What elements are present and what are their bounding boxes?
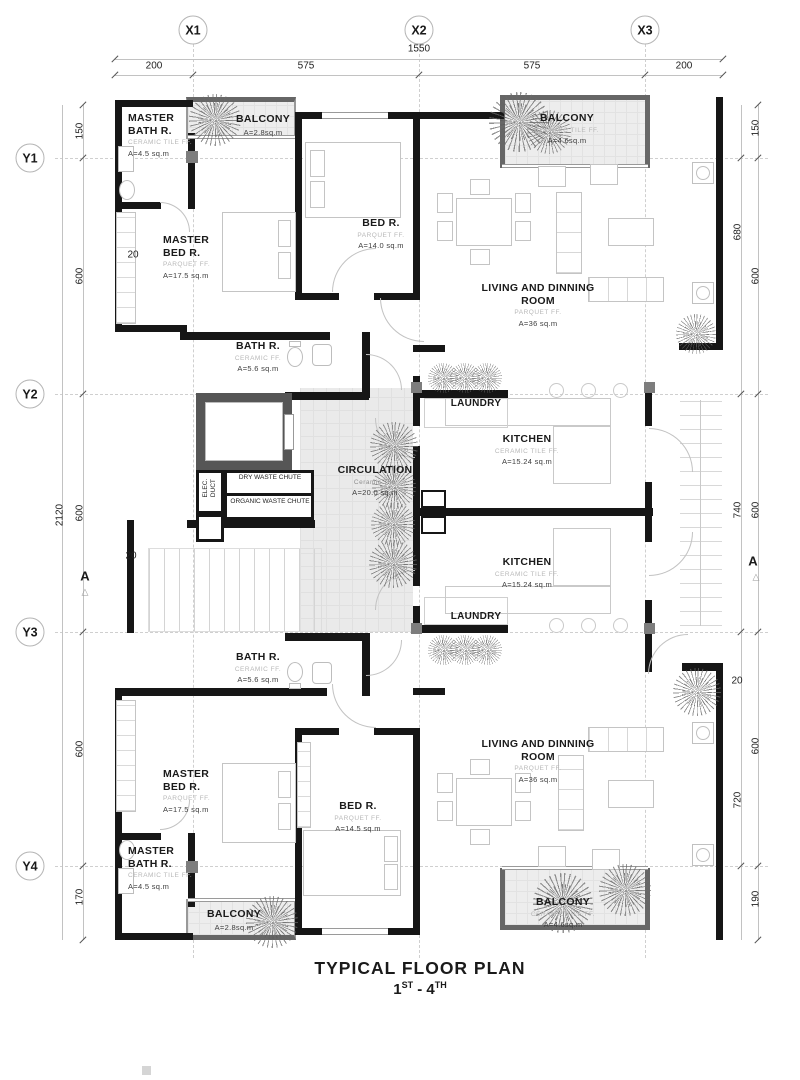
wall xyxy=(224,493,314,496)
drawing-subtitle: 1ST - 4TH xyxy=(393,980,447,998)
room-finish: PARQUET FF. xyxy=(473,765,603,773)
room-area: A=15.24 sq.m xyxy=(495,457,559,466)
dim-right-inner-1: 680 xyxy=(733,224,744,241)
column xyxy=(411,382,422,393)
room-name: LAUNDRY xyxy=(451,398,502,410)
room-label-bath-lower: BATH R. CERAMIC FF. A=5.6 sq.m xyxy=(235,651,281,684)
wall xyxy=(115,688,327,696)
wall-mark-20-b: 20 xyxy=(125,551,136,562)
organic-waste-chute-label: ORGANIC WASTE CHUTE xyxy=(230,498,310,506)
dim-tick xyxy=(754,936,761,943)
dim-top-seg-4: 200 xyxy=(676,61,693,72)
chair xyxy=(470,179,490,195)
room-finish: PARQUET FF. xyxy=(357,232,404,240)
wall xyxy=(180,332,330,340)
dim-right-outer-3: 600 xyxy=(751,502,762,519)
toilet-tank xyxy=(289,341,301,347)
axis-label-x2: X2 xyxy=(411,23,426,37)
room-name: LIVING AND DINNING ROOM xyxy=(473,282,603,307)
wall xyxy=(413,112,420,300)
room-area: A=2.8sq.m xyxy=(207,923,261,932)
room-name: BALCONY xyxy=(531,896,595,909)
room-finish: PARQUET FF. xyxy=(334,815,381,823)
wall xyxy=(115,202,161,209)
axis-bubble-y4: Y4 xyxy=(16,852,45,881)
room-label-living-upper: LIVING AND DINNING ROOM PARQUET FF. A=36… xyxy=(473,282,603,328)
dim-top-seg-2: 575 xyxy=(298,61,315,72)
axis-label-y2: Y2 xyxy=(22,387,37,401)
room-finish: PARQUET FF. xyxy=(473,309,603,317)
room-label-master-bath-upper: MASTER BATH R. CERAMIC TILE FF. A=4.5 sq… xyxy=(128,112,204,158)
stairs-right-centerline xyxy=(700,400,701,626)
wall xyxy=(413,345,445,352)
dry-waste-chute-label: DRY WASTE CHUTE xyxy=(230,474,310,482)
room-area: A=2.8sq.m xyxy=(236,128,290,137)
stairs-right xyxy=(680,400,722,626)
plant-icon xyxy=(676,314,716,354)
room-label-laundry-lower: LAUNDRY xyxy=(451,611,502,623)
dim-left-seg-3: 600 xyxy=(75,505,86,522)
dim-right-outer-4: 600 xyxy=(751,738,762,755)
room-label-master-bed-upper: MASTER BED R. PARQUET FF. A=17.5 sq.m xyxy=(163,234,233,280)
room-label-circulation: CIRCULATION Ceramic Tile A=20.0 sq.m xyxy=(338,464,413,497)
floor-dash: - xyxy=(413,981,426,998)
section-marker-a-left: A xyxy=(80,569,89,584)
floor-plan-drawing: X1 X2 X3 Y1 Y2 Y3 Y4 1550 200 575 575 20… xyxy=(0,0,800,1080)
room-area: A=15.24 sq.m xyxy=(495,580,559,589)
room-label-balcony-bottom-left: BALCONY A=2.8sq.m xyxy=(207,908,261,932)
chair xyxy=(437,773,453,793)
room-area: A=36 sq.m xyxy=(473,319,603,328)
shaft-box xyxy=(421,490,446,508)
toilet xyxy=(287,662,303,682)
room-name: LAUNDRY xyxy=(451,611,502,623)
section-triangle-right: △ xyxy=(753,572,760,583)
axis-label-y4: Y4 xyxy=(22,859,37,873)
axis-label-y3: Y3 xyxy=(22,625,37,639)
wall xyxy=(295,293,339,300)
sofa xyxy=(556,192,582,274)
room-label-balcony-bottom-right: BALCONY CERAMIC TILE FF. A=4.6sq.m xyxy=(531,896,595,929)
room-area: A=17.5 sq.m xyxy=(163,805,233,814)
axis-bubble-x3: X3 xyxy=(631,16,660,45)
plant-icon xyxy=(472,635,502,665)
room-area: A=4.6sq.m xyxy=(535,136,599,145)
sink-circle xyxy=(549,383,564,398)
room-name: MASTER BED R. xyxy=(163,768,233,793)
chair xyxy=(470,249,490,265)
wall xyxy=(295,928,323,935)
dim-right-outer-2: 600 xyxy=(751,268,762,285)
coffee-table xyxy=(608,218,654,246)
room-name: BATH R. xyxy=(235,340,281,353)
room-finish: CERAMIC TILE FF. xyxy=(128,872,204,880)
elevator-door xyxy=(284,414,294,450)
room-label-master-bed-lower: MASTER BED R. PARQUET FF. A=17.5 sq.m xyxy=(163,768,233,814)
axis-label-x1: X1 xyxy=(185,23,200,37)
chair xyxy=(470,829,490,845)
chair xyxy=(437,221,453,241)
room-area: A=4.5 sq.m xyxy=(128,882,204,891)
toilet xyxy=(119,180,135,200)
wall xyxy=(420,508,653,516)
dim-top-seg-1: 200 xyxy=(146,61,163,72)
room-area: A=20.0 sq.m xyxy=(338,488,413,497)
chair xyxy=(515,193,531,213)
wall xyxy=(115,325,187,332)
pillow xyxy=(310,181,325,208)
room-name: BATH R. xyxy=(235,651,281,664)
dim-left-seg-2: 600 xyxy=(75,268,86,285)
wall xyxy=(115,100,193,107)
wall xyxy=(420,625,508,633)
room-finish: CERAMIC TILE FF. xyxy=(495,571,559,579)
dim-left-seg-4: 600 xyxy=(75,741,86,758)
room-name: BALCONY xyxy=(207,908,261,921)
door-arc xyxy=(332,248,376,292)
dim-right-outer-5: 190 xyxy=(751,891,762,908)
chair xyxy=(515,221,531,241)
wall xyxy=(295,112,302,300)
pillow xyxy=(384,864,398,890)
armchair xyxy=(538,166,566,187)
coffee-table xyxy=(608,780,654,808)
section-marker-a-right: A xyxy=(748,554,757,569)
room-label-laundry-upper: LAUNDRY xyxy=(451,398,502,410)
dim-right-outer-1: 150 xyxy=(751,120,762,137)
room-area: A=14.0 sq.m xyxy=(357,241,404,250)
chair xyxy=(515,801,531,821)
kitchen-counter xyxy=(445,586,611,614)
wall xyxy=(127,520,134,633)
dining-table xyxy=(456,198,512,246)
pillow xyxy=(278,252,291,279)
room-label-bed-upper: BED R. PARQUET FF. A=14.0 sq.m xyxy=(357,217,404,250)
room-finish: CERAMIC TILE FF. xyxy=(495,448,559,456)
door-arc xyxy=(366,640,402,676)
room-name: MASTER BATH R. xyxy=(128,112,204,137)
wall xyxy=(374,728,420,735)
water-heater xyxy=(692,162,714,184)
room-label-kitchen-upper: KITCHEN CERAMIC TILE FF. A=15.24 sq.m xyxy=(495,433,559,466)
chair xyxy=(437,193,453,213)
wall xyxy=(115,833,161,840)
wall xyxy=(285,633,369,641)
axis-bubble-y2: Y2 xyxy=(16,380,45,409)
shaft-box xyxy=(421,516,446,534)
pillow xyxy=(310,150,325,177)
pillow xyxy=(384,836,398,862)
room-finish: CERAMIC TILE FF. xyxy=(128,139,204,147)
dim-line-left-segments xyxy=(83,105,84,940)
dim-tick xyxy=(719,55,726,62)
axis-label-x3: X3 xyxy=(637,23,652,37)
chair xyxy=(437,801,453,821)
room-label-bed-lower: BED R. PARQUET FF. A=14.5 sq.m xyxy=(334,800,381,833)
armchair xyxy=(538,846,566,867)
room-name: MASTER BED R. xyxy=(163,234,233,259)
room-finish: CERAMIC FF. xyxy=(235,666,281,674)
room-area: A=36 sq.m xyxy=(473,775,603,784)
pillow xyxy=(278,220,291,247)
water-heater xyxy=(692,722,714,744)
room-area: A=17.5 sq.m xyxy=(163,271,233,280)
axis-bubble-x2: X2 xyxy=(405,16,434,45)
dim-line-right-outer xyxy=(758,105,759,940)
sink-circle xyxy=(613,618,628,633)
wall xyxy=(295,728,339,735)
wall xyxy=(115,933,193,940)
column xyxy=(411,623,422,634)
dim-top-seg-3: 575 xyxy=(524,61,541,72)
room-finish: PARQUET FF. xyxy=(163,795,233,803)
grid-line-y1 xyxy=(55,158,768,159)
dim-left-seg-5: 170 xyxy=(75,889,86,906)
sink-circle xyxy=(581,383,596,398)
wall xyxy=(645,390,652,426)
room-label-kitchen-lower: KITCHEN CERAMIC TILE FF. A=15.24 sq.m xyxy=(495,556,559,589)
wall xyxy=(413,688,445,695)
stairs-left xyxy=(148,548,322,632)
room-name: BED R. xyxy=(357,217,404,230)
plant-icon xyxy=(369,540,417,588)
wall xyxy=(413,728,420,935)
room-name: KITCHEN xyxy=(495,433,559,446)
room-area: A=4.5 sq.m xyxy=(128,149,204,158)
door-arc xyxy=(648,634,688,674)
closet xyxy=(116,700,136,812)
kitchen-counter xyxy=(553,528,611,586)
dim-top-overall: 1550 xyxy=(408,44,430,55)
room-name: CIRCULATION xyxy=(338,464,413,477)
room-label-balcony-top-left: BALCONY A=2.8sq.m xyxy=(236,113,290,137)
dim-left-seg-1: 150 xyxy=(75,123,86,140)
room-area: A=4.6sq.m xyxy=(531,920,595,929)
room-label-master-bath-lower: MASTER BATH R. CERAMIC TILE FF. A=4.5 sq… xyxy=(128,845,204,891)
room-finish: CERAMIC FF. xyxy=(235,355,281,363)
plant-icon xyxy=(599,864,651,916)
kitchen-counter xyxy=(553,426,611,484)
shaft-cell xyxy=(196,514,224,542)
room-finish: CERAMIC TILE FF. xyxy=(531,911,595,919)
room-label-bath-upper: BATH R. CERAMIC FF. A=5.6 sq.m xyxy=(235,340,281,373)
room-name: BALCONY xyxy=(236,113,290,126)
dim-right-inner-2: 740 xyxy=(733,502,744,519)
sink xyxy=(312,344,332,366)
wall-mark-20-a: 20 xyxy=(127,250,138,261)
toilet xyxy=(287,347,303,367)
pillow xyxy=(278,803,291,830)
toilet-tank xyxy=(289,683,301,689)
door-arc xyxy=(332,684,376,728)
wall xyxy=(285,392,369,400)
sink xyxy=(312,662,332,684)
dim-line-top-overall xyxy=(115,59,723,60)
drawing-title: TYPICAL FLOOR PLAN xyxy=(314,958,525,979)
column xyxy=(644,623,655,634)
pillow xyxy=(278,771,291,798)
closet xyxy=(297,742,311,828)
wall xyxy=(388,928,420,935)
window xyxy=(322,112,388,119)
dim-left-overall: 2120 xyxy=(55,504,66,526)
room-name: LIVING AND DINNING ROOM xyxy=(473,738,603,763)
wall xyxy=(388,112,420,119)
dim-tick xyxy=(719,71,726,78)
section-triangle-left: △ xyxy=(82,587,89,598)
floor-to-suffix: TH xyxy=(435,980,447,990)
plant-icon xyxy=(370,422,418,470)
room-label-balcony-top-right: BALCONY CERAMIC TILE FF. A=4.6sq.m xyxy=(535,112,599,145)
wall-mark-20-c: 20 xyxy=(731,676,742,687)
dining-table xyxy=(456,778,512,826)
room-finish: CERAMIC TILE FF. xyxy=(535,127,599,135)
elevator-cab xyxy=(205,402,283,461)
column xyxy=(644,382,655,393)
axis-bubble-y3: Y3 xyxy=(16,618,45,647)
water-heater xyxy=(692,844,714,866)
room-name: MASTER BATH R. xyxy=(128,845,204,870)
room-area: A=14.5 sq.m xyxy=(334,824,381,833)
plant-icon xyxy=(472,363,502,393)
room-name: KITCHEN xyxy=(495,556,559,569)
wall xyxy=(295,112,323,119)
axis-bubble-x1: X1 xyxy=(179,16,208,45)
door-arc xyxy=(366,354,402,390)
plant-icon xyxy=(673,668,721,716)
floor-to: 4 xyxy=(426,981,434,998)
sink-circle xyxy=(581,618,596,633)
room-finish: PARQUET FF. xyxy=(163,261,233,269)
sink-circle xyxy=(549,618,564,633)
room-area: A=5.6 sq.m xyxy=(235,675,281,684)
window xyxy=(322,928,388,935)
closet xyxy=(116,212,136,324)
door-arc xyxy=(380,298,424,342)
room-area: A=5.6 sq.m xyxy=(235,364,281,373)
elec-duct-label: ELEC. DUCT xyxy=(202,473,218,503)
room-name: BED R. xyxy=(334,800,381,813)
door-arc xyxy=(160,202,190,232)
room-name: BALCONY xyxy=(535,112,599,125)
wall xyxy=(716,97,723,350)
axis-label-y1: Y1 xyxy=(22,151,37,165)
room-label-living-lower: LIVING AND DINNING ROOM PARQUET FF. A=36… xyxy=(473,738,603,784)
sink-circle xyxy=(613,383,628,398)
floor-from-suffix: ST xyxy=(402,980,414,990)
dim-tick xyxy=(79,936,86,943)
water-heater xyxy=(692,282,714,304)
dim-right-inner-3: 720 xyxy=(733,792,744,809)
armchair xyxy=(590,164,618,185)
artifact xyxy=(142,1066,151,1075)
window xyxy=(502,164,648,168)
axis-bubble-y1: Y1 xyxy=(16,144,45,173)
room-finish: Ceramic Tile xyxy=(338,479,413,487)
